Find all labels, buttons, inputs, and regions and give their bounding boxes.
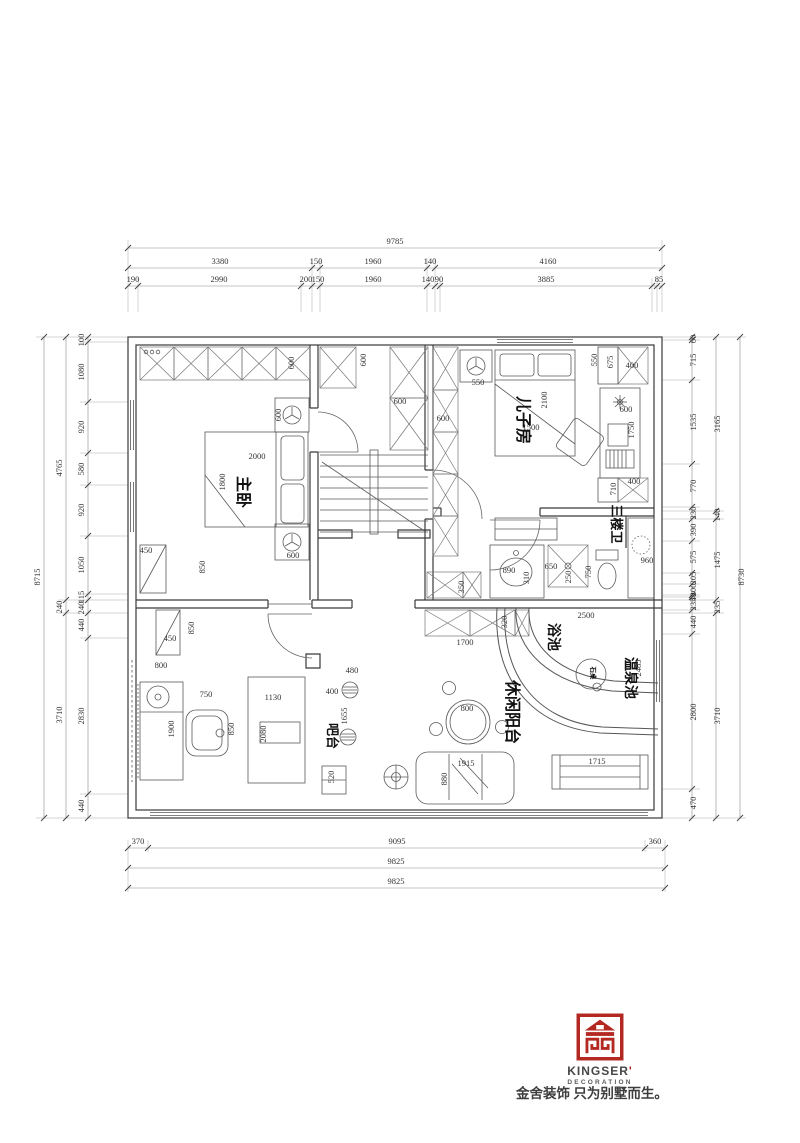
kingser-logo xyxy=(575,1012,625,1062)
closet-cell-diagonal xyxy=(433,347,458,390)
closet-cells xyxy=(140,347,648,636)
closet-cell-diagonal xyxy=(174,347,208,380)
room-label-master: 主卧 xyxy=(234,476,253,508)
dim-label: 710 xyxy=(608,483,618,496)
dim-label: 9785 xyxy=(387,236,404,246)
dimension-lines xyxy=(44,248,740,888)
dim-label: 480 xyxy=(346,665,359,675)
dim-label: 800 xyxy=(461,703,474,713)
brand-footer: KINGSER' DECORATION xyxy=(540,1012,660,1086)
closet-cell-diagonal xyxy=(433,390,458,432)
dim-label: 320 xyxy=(499,616,509,629)
dim-label: 550 xyxy=(589,354,599,367)
closet-cell-diagonal xyxy=(320,347,356,388)
dim-label: 3885 xyxy=(538,274,555,284)
dim-label: 1960 xyxy=(365,274,382,284)
dim-label: 960 xyxy=(641,555,654,565)
fan-blade xyxy=(469,366,476,370)
dim-label: 750 xyxy=(583,566,593,579)
dim-label: 3710 xyxy=(712,708,722,725)
extension-lines xyxy=(36,240,746,892)
room-label-balcony: 休闲阳台 xyxy=(503,679,522,744)
fan-blade xyxy=(285,415,292,419)
dim-label: 1960 xyxy=(365,256,382,266)
dim-label: 140 xyxy=(424,256,437,266)
dim-label: 1915 xyxy=(458,758,475,768)
dim-label: 600 xyxy=(437,413,450,423)
room-label-bath: 三楼卫 xyxy=(609,504,624,543)
closet-cell-diagonal xyxy=(433,432,458,474)
dim-label: 575 xyxy=(688,551,698,564)
dim-label: 370 xyxy=(132,836,145,846)
closet-cell-diagonal xyxy=(390,347,428,398)
dim-label: 450 xyxy=(164,633,177,643)
dim-label: 100 xyxy=(76,334,86,347)
dim-label: 850 xyxy=(197,561,207,574)
dim-label: 205 xyxy=(688,572,698,585)
dim-label: 440 xyxy=(76,619,86,632)
dim-label: 90 xyxy=(435,274,444,284)
dim-label: 800 xyxy=(155,660,168,670)
dim-label: 2800 xyxy=(688,704,698,721)
fan-blade xyxy=(292,415,299,419)
dimension-labels: 9785338015019601404160190299020015019601… xyxy=(32,236,746,886)
dim-label: 2000 xyxy=(249,451,266,461)
dim-label: 310 xyxy=(521,572,531,585)
floor-plan-drawing: 9785338015019601404160190299020015019601… xyxy=(0,0,800,1143)
closet-cell-diagonal xyxy=(242,347,276,380)
closet-cell-diagonal xyxy=(433,516,458,556)
dim-label: 440 xyxy=(76,800,86,813)
dim-label: 1130 xyxy=(265,692,282,702)
dim-label: 350 xyxy=(456,581,466,594)
dim-label: 2100 xyxy=(539,392,549,409)
dim-label: 440 xyxy=(688,616,698,629)
dim-label: 150 xyxy=(310,256,323,266)
dim-label: 920 xyxy=(76,421,86,434)
dim-label: 715 xyxy=(688,354,698,367)
dim-label: 240 xyxy=(76,602,86,615)
windows xyxy=(131,340,660,816)
dim-label: 600 xyxy=(394,396,407,406)
dim-label: 600 xyxy=(273,409,283,422)
kingser-logo-icon xyxy=(575,1012,625,1062)
closet-cell-diagonal xyxy=(433,474,458,516)
dim-label: 150 xyxy=(312,274,325,284)
dim-label: 920 xyxy=(76,504,86,517)
dimension-ticks xyxy=(41,245,743,891)
dim-label: 2080 xyxy=(258,726,268,743)
dim-label: 600 xyxy=(358,354,368,367)
dim-label: 390 xyxy=(688,524,698,537)
dim-label: 650 xyxy=(545,561,558,571)
dim-label: 250 xyxy=(563,571,573,584)
dim-label: 8715 xyxy=(32,569,42,586)
dim-label: 550 xyxy=(472,377,485,387)
dim-label: 450 xyxy=(140,545,153,555)
floor-plan-page: 9785338015019601404160190299020015019601… xyxy=(0,0,800,1143)
dim-label: 850 xyxy=(226,723,236,736)
dim-label: 1475 xyxy=(712,552,722,569)
dim-label: 400 xyxy=(626,360,639,370)
dim-label: 400 xyxy=(628,476,641,486)
dim-label: 2500 xyxy=(578,610,595,620)
dim-label: 770 xyxy=(688,480,698,493)
dim-label: 9825 xyxy=(388,856,405,866)
dim-label: 3710 xyxy=(54,707,64,724)
dim-label: 140 xyxy=(712,509,722,522)
dim-label: 2990 xyxy=(211,274,228,284)
dim-label: 1655 xyxy=(339,708,349,725)
dim-label: 600 xyxy=(620,404,633,414)
dim-label: 115 xyxy=(76,591,86,603)
dim-label: 470 xyxy=(688,797,698,810)
dim-label: 750 xyxy=(200,689,213,699)
dim-label: 4765 xyxy=(54,460,64,477)
dim-label: 2830 xyxy=(76,708,86,725)
dim-label: 600 xyxy=(287,550,300,560)
dim-label: 9825 xyxy=(388,876,405,886)
dim-label: 600 xyxy=(286,357,296,370)
dim-label: 1700 xyxy=(457,637,474,647)
dim-label: 9095 xyxy=(389,836,406,846)
room-label-hot-spring: 温泉池 xyxy=(623,657,639,699)
room-label-bar: 吧台 xyxy=(325,723,340,749)
closet-cell-diagonal xyxy=(140,347,174,380)
brand-name: KINGSER' xyxy=(540,1064,660,1078)
dim-label: 360 xyxy=(649,836,662,846)
brand-tagline: 金舍装饰 只为别墅而生。 xyxy=(516,1082,716,1102)
dim-label: 8730 xyxy=(736,569,746,586)
dim-label: 3380 xyxy=(212,256,229,266)
dim-label: 230 xyxy=(688,507,698,520)
dim-label: 890 xyxy=(503,565,516,575)
dim-label: 1750 xyxy=(626,422,636,439)
fan-blade xyxy=(285,542,292,546)
fan-blade xyxy=(476,366,483,370)
dim-label: 60 xyxy=(688,335,698,344)
room-label-son: 儿子房 xyxy=(514,395,533,444)
dim-label: 4160 xyxy=(540,256,557,266)
dim-label: 400 xyxy=(326,686,339,696)
walls xyxy=(128,337,662,818)
dim-label: 1800 xyxy=(217,474,227,491)
dim-label: 235 xyxy=(688,598,698,611)
dim-label: 200 xyxy=(300,274,313,284)
dim-label: 235 xyxy=(712,601,722,614)
dim-label: 1900 xyxy=(166,721,176,738)
room-label-stone-table: 石桌 xyxy=(589,666,598,681)
dim-label: 580 xyxy=(76,463,86,476)
dim-label: 240 xyxy=(54,601,64,614)
room-label-small-pool: 浴池 xyxy=(546,623,562,651)
dim-label: 1715 xyxy=(589,756,606,766)
dim-label: 1535 xyxy=(688,414,698,431)
dim-label: 190 xyxy=(127,274,140,284)
dim-label: 520 xyxy=(326,771,336,784)
dim-label: 880 xyxy=(439,773,449,786)
dim-label: 3165 xyxy=(712,416,722,433)
fan-blade xyxy=(292,542,299,546)
dim-label: 675 xyxy=(605,356,615,369)
dim-label: 1050 xyxy=(76,557,86,574)
closet-cell-diagonal xyxy=(208,347,242,380)
dim-label: 140 xyxy=(422,274,435,284)
brand-apostrophe: ' xyxy=(629,1064,633,1078)
dim-label: 850 xyxy=(186,622,196,635)
dim-label: 1080 xyxy=(76,364,86,381)
closet-cell-diagonal xyxy=(425,610,470,636)
dim-label: 85 xyxy=(655,274,664,284)
